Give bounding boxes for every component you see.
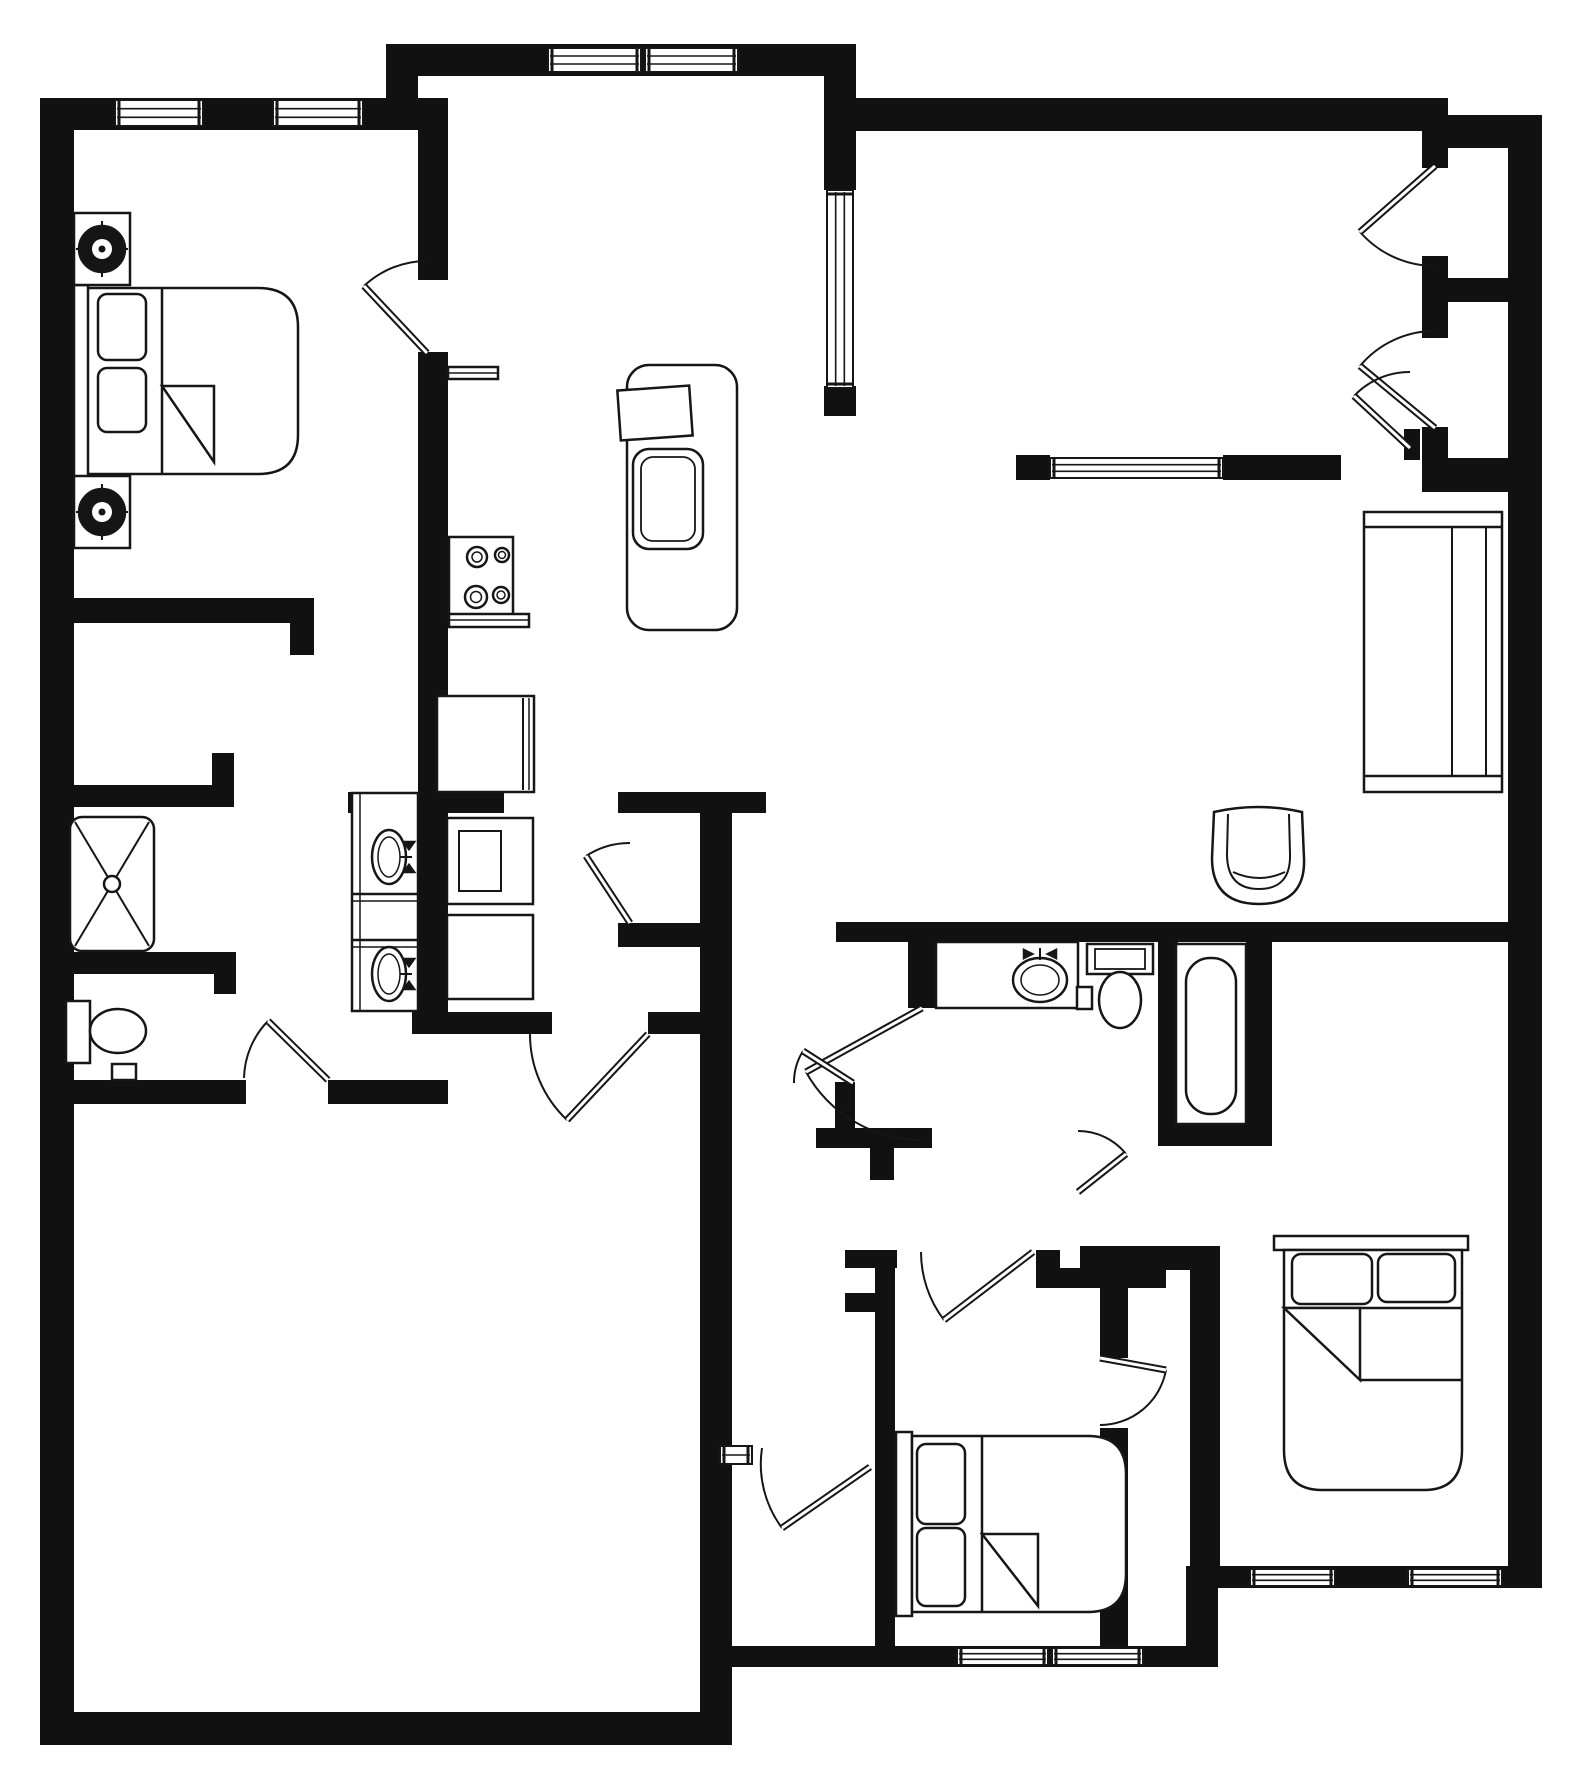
window-bedroom3-2 <box>1408 1569 1502 1586</box>
wall-closet3-top-wall <box>1060 1268 1166 1288</box>
wall-master-closet-stub-b <box>212 753 234 787</box>
bed-master-part <box>74 285 88 477</box>
window-master-2 <box>273 100 363 126</box>
bathtub <box>1176 944 1246 1124</box>
refrigerator <box>437 696 534 792</box>
bed-middle-part <box>917 1444 965 1524</box>
wall-bedroom2-left-stub <box>845 1293 875 1312</box>
wall-bedroom2-left-wall <box>875 1268 895 1667</box>
nightstand-lamp-2-part <box>99 509 106 516</box>
bed-right-part <box>1274 1236 1468 1250</box>
window-living-south-frame <box>1050 458 1223 478</box>
bed-right-part <box>1292 1254 1372 1304</box>
wall-bath2-right-wall <box>1246 942 1272 1146</box>
kitchen-island-part <box>641 457 695 541</box>
window-kitchen-1-frame <box>548 48 641 72</box>
vanity-master <box>352 793 418 1011</box>
dresser-part <box>1364 512 1502 792</box>
window-master-2-frame <box>273 100 363 126</box>
stove-part <box>471 592 482 603</box>
wall-bedroom2-top-piece <box>845 1250 897 1268</box>
wall-master-closet-wall-b <box>74 785 234 807</box>
plan-background <box>0 0 1596 1768</box>
window-kitchen-2 <box>645 48 738 72</box>
bathtub-part <box>1186 958 1236 1114</box>
wall-pantry-top-wall <box>618 792 766 813</box>
wall-right-wall <box>1508 115 1542 1588</box>
wall-bedroom2-top-stub <box>1036 1250 1060 1288</box>
wall-bath1-bottom-left <box>74 1080 246 1104</box>
stove-part <box>497 591 505 599</box>
wall-bath2-top-wall <box>836 922 1510 942</box>
wall-closet-divider <box>1422 278 1508 302</box>
kitchen-island <box>617 365 737 630</box>
stove-part <box>472 552 482 562</box>
vanity-bath2-part <box>1021 965 1059 995</box>
wall-bedroom3-left-wall <box>1190 1246 1220 1588</box>
refrigerator-part <box>437 696 534 792</box>
stove <box>449 537 513 617</box>
kitchen-counter-edge-upper <box>448 367 498 379</box>
bed-master <box>74 285 298 477</box>
wall-living-bottom-wall-b <box>1223 455 1341 480</box>
floor-plan-page <box>0 0 1596 1768</box>
toilet-bath2-part <box>1095 949 1145 969</box>
bed-middle <box>896 1432 1126 1616</box>
window-bedroom2-2-frame <box>1052 1648 1143 1665</box>
wall-hall-bottom-right <box>648 1012 700 1034</box>
vent-hall-closet <box>720 1446 752 1464</box>
bed-middle-part <box>896 1432 912 1616</box>
wall-living-bottom-wall-a <box>1016 455 1050 480</box>
nightstand-lamp-2 <box>74 476 130 548</box>
wall-bath1-bottom-right <box>328 1080 448 1104</box>
window-kitchen-living-pass <box>827 190 853 388</box>
dresser <box>1364 512 1502 792</box>
vanity-master-part <box>378 954 400 994</box>
washer <box>447 818 533 904</box>
toilet-master-part <box>66 1001 90 1063</box>
bed-master-part <box>98 368 146 432</box>
vanity-master-part <box>378 837 400 877</box>
toilet-bath2-part <box>1099 972 1141 1028</box>
window-kitchen-2-frame <box>645 48 738 72</box>
wall-bath1-wall-c <box>74 952 236 974</box>
bed-right <box>1274 1236 1468 1490</box>
nightstand-lamp-1 <box>74 213 130 285</box>
wall-master-closet-wall-a <box>74 598 314 623</box>
window-bedroom2-2 <box>1052 1648 1143 1665</box>
wall-master-divider-upper <box>418 98 448 280</box>
wall-closet2-stub <box>1422 427 1448 458</box>
window-kitchen-living-pass-frame <box>827 190 853 388</box>
shower <box>70 817 154 951</box>
dryer <box>447 915 533 999</box>
toilet-master-part <box>90 1009 146 1053</box>
desk-chair <box>1212 807 1304 904</box>
wall-bedroom2-right-wall-upper <box>1100 1288 1128 1358</box>
kitchen-island-part <box>617 386 692 441</box>
window-bedroom2-1 <box>957 1648 1048 1665</box>
wall-bath2-left-stub <box>908 942 936 1008</box>
wall-pantry-bottom-wall <box>618 923 720 947</box>
stove-part <box>499 552 506 559</box>
nightstand-lamp-1-part <box>99 246 106 253</box>
window-bedroom3-2-frame <box>1408 1569 1502 1586</box>
bed-master-part <box>98 294 146 360</box>
wall-laundry-top-wall <box>448 792 504 813</box>
shower-part <box>104 876 120 892</box>
vanity-bath2 <box>936 942 1092 1009</box>
floor-plan <box>0 0 1596 1768</box>
wall-hall-bottom-left <box>412 1012 552 1034</box>
wall-living-top-wall <box>824 98 1448 131</box>
wall-closet2-bottom-wall <box>1422 458 1508 492</box>
window-kitchen-1 <box>548 48 641 72</box>
window-bedroom3-1-frame <box>1250 1569 1335 1586</box>
wall-kitchen-living-divider-stub <box>824 386 856 416</box>
wall-garage-bottom-wall <box>40 1712 732 1745</box>
toilet-master-part <box>112 1064 136 1080</box>
bed-middle-part <box>917 1528 965 1606</box>
wall-bath1-stub-c <box>214 974 236 994</box>
window-master-1 <box>115 100 203 126</box>
dryer-part <box>447 915 533 999</box>
window-living-south <box>1050 458 1223 478</box>
wall-hall-stub-d <box>870 1148 894 1180</box>
vanity-bath2-part <box>1077 987 1092 1009</box>
wall-master-closet-stub-a <box>290 623 314 655</box>
bed-right-part <box>1378 1254 1455 1302</box>
wall-closet2-mid-piece <box>1422 302 1448 338</box>
kitchen-counter-edge-lower <box>449 614 529 627</box>
window-bedroom2-1-frame <box>957 1648 1048 1665</box>
window-bedroom3-1 <box>1250 1569 1335 1586</box>
wall-master-divider-lower <box>418 352 448 1033</box>
washer-part <box>459 831 501 891</box>
window-master-1-frame <box>115 100 203 126</box>
